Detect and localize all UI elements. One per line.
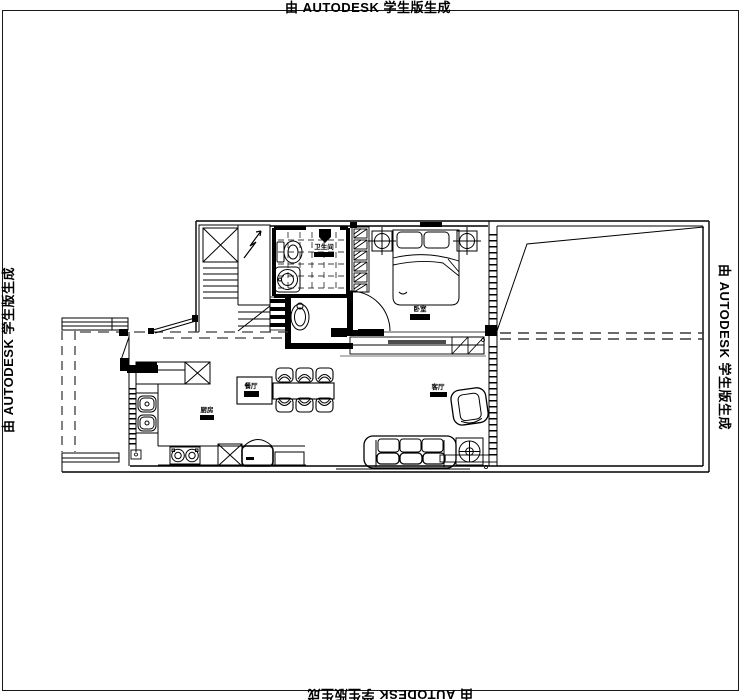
bathroom-label: 卫生间 (300, 244, 348, 257)
kitchen-sink-unit (136, 393, 158, 433)
ceiling-lamp-symbol-left (368, 227, 396, 255)
floor-plan-drawing (0, 0, 740, 700)
sheet-border (3, 11, 739, 691)
washbasin-symbol (291, 303, 309, 330)
right-room (482, 221, 705, 466)
cad-sheet: 由 AUTODESK 学生版生成 由 AUTODESK 学生版生成 由 AUTO… (0, 0, 740, 700)
living-label: 客厅 (414, 384, 462, 397)
entry-door-leaf-upper (153, 318, 196, 333)
label-underline (430, 392, 447, 397)
living-label-text: 客厅 (432, 384, 445, 391)
tile-grid (278, 232, 344, 292)
stove-symbol (170, 447, 200, 464)
bed-symbol (393, 230, 459, 305)
living-room (336, 387, 497, 469)
bathroom (274, 228, 348, 296)
bathroom-door-marker (319, 229, 331, 243)
label-underline (200, 415, 214, 420)
sofa-symbol (364, 436, 456, 468)
ceiling-slope-lines (497, 227, 704, 331)
entry (62, 315, 198, 373)
column-x-top (185, 362, 210, 384)
outer-walls (62, 221, 709, 472)
label-underline (314, 252, 334, 257)
floor-lamp-symbol (456, 438, 488, 469)
dashed-guides-right (500, 333, 704, 339)
cooktop-appliance (242, 440, 273, 467)
washroom-walls (285, 291, 362, 349)
dining-label-text: 餐厅 (245, 383, 258, 390)
lower-steps (270, 299, 287, 327)
column-x-bottom (218, 444, 242, 466)
label-underline (244, 391, 259, 397)
bedroom-door-arc (350, 291, 390, 331)
label-underline (410, 314, 430, 320)
dining-label: 餐厅 (227, 383, 275, 397)
bedroom (340, 222, 488, 356)
kitchen-label: 厨房 (183, 407, 231, 420)
dashed-guides-corridor (80, 332, 288, 338)
wardrobe (352, 227, 369, 292)
bedroom-label-text: 卧室 (414, 306, 427, 313)
ceiling-lamp-symbol-right (453, 227, 481, 255)
bedroom-label: 卧室 (396, 306, 444, 320)
dining-table (273, 383, 334, 399)
wall-segment (358, 329, 384, 336)
washroom (285, 291, 362, 349)
bathroom-label-text: 卫生间 (314, 244, 334, 251)
stair-direction-arrow (244, 231, 261, 258)
entry-door-leaf-lower (121, 337, 129, 360)
terrace (62, 331, 119, 472)
bathroom-walls (274, 228, 348, 296)
kitchen-label-text: 厨房 (201, 407, 214, 414)
bedroom-window-band (340, 337, 486, 356)
dining-chairs (276, 368, 333, 412)
